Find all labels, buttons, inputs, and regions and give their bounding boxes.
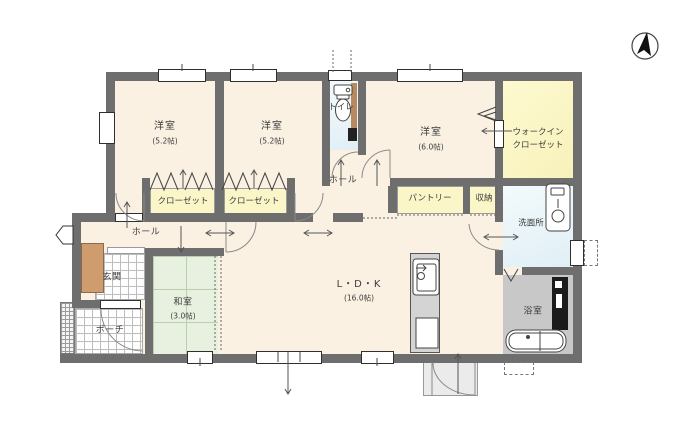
window bbox=[361, 351, 394, 364]
wall-segment bbox=[495, 178, 573, 186]
room-size-bedroom1: (5.2帖) bbox=[152, 136, 177, 145]
wall-segment bbox=[142, 178, 150, 222]
window-outline-dashed bbox=[504, 362, 534, 375]
window bbox=[328, 70, 352, 81]
window bbox=[158, 69, 206, 82]
window bbox=[397, 69, 463, 82]
window bbox=[256, 351, 322, 364]
room-size-japanese-room: (3.0帖) bbox=[170, 311, 195, 320]
room-label-washroom: 洗面所 bbox=[518, 219, 544, 230]
entrance-step bbox=[107, 247, 145, 254]
room-label-walkin-closet-1: ウォークイン bbox=[512, 128, 563, 139]
room-size-bedroom3: (6.0帖) bbox=[418, 142, 443, 151]
room-label-bathroom: 浴室 bbox=[523, 306, 542, 317]
wall-segment bbox=[75, 300, 100, 308]
wall-segment bbox=[463, 186, 470, 214]
exit-step-platform bbox=[423, 362, 478, 396]
window bbox=[230, 69, 277, 82]
door-sill bbox=[115, 213, 143, 222]
wall-segment bbox=[390, 178, 495, 186]
room-size-bedroom2: (5.2帖) bbox=[259, 136, 284, 145]
window bbox=[187, 351, 213, 364]
wall-segment bbox=[106, 72, 115, 222]
room-label-pantry: パントリー bbox=[409, 194, 452, 205]
entrance-door bbox=[100, 300, 141, 309]
walkin-closet-door bbox=[494, 120, 504, 148]
wall-segment bbox=[215, 72, 224, 222]
wall-segment bbox=[145, 248, 153, 354]
room-label-japanese-room: 和室 bbox=[173, 297, 192, 308]
hall-niche-window bbox=[56, 226, 73, 244]
window bbox=[570, 240, 584, 266]
wall-segment bbox=[72, 213, 115, 222]
wall-segment bbox=[495, 267, 503, 275]
kitchen-counter bbox=[410, 253, 440, 353]
north-arrow-icon bbox=[632, 32, 658, 59]
wall-segment bbox=[322, 72, 330, 186]
shoe-cabinet bbox=[81, 243, 104, 293]
room-label-bedroom3: 洋室 bbox=[420, 127, 442, 140]
wall-segment bbox=[573, 72, 582, 363]
room-label-entrance: 玄関 bbox=[102, 272, 121, 283]
room-label-walkin-closet-2: クローゼット bbox=[512, 141, 563, 152]
room-label-hall-upper: ホール bbox=[329, 175, 358, 186]
porch-side-hatch bbox=[60, 302, 75, 354]
room-label-closet-right: クローゼット bbox=[228, 197, 279, 208]
room-label-porch: ポーチ bbox=[96, 325, 125, 336]
room-label-bedroom2: 洋室 bbox=[261, 121, 283, 134]
window-outline-dashed bbox=[584, 240, 598, 266]
wall-segment bbox=[72, 213, 81, 308]
room-label-ldk: L・D・K bbox=[337, 279, 382, 292]
floor-plan: 洋室 (5.2帖) 洋室 (5.2帖) 洋室 (6.0帖) ウォークイン クロー… bbox=[0, 0, 700, 446]
bathroom-unit-panel bbox=[552, 277, 568, 330]
wall-segment bbox=[333, 213, 363, 222]
wall-segment bbox=[388, 186, 397, 213]
window bbox=[99, 112, 115, 144]
wall-segment bbox=[358, 72, 366, 155]
wall-segment bbox=[145, 248, 224, 256]
room-label-hall-lower: ホール bbox=[132, 227, 161, 238]
room-label-storage: 収納 bbox=[475, 194, 492, 205]
room-label-closet-left: クローゼット bbox=[157, 197, 208, 208]
room-label-bedroom1: 洋室 bbox=[154, 121, 176, 134]
room-label-toilet: トイレ bbox=[328, 103, 354, 114]
toilet-door-lock bbox=[348, 128, 357, 141]
wall-segment bbox=[522, 267, 582, 275]
wall-segment bbox=[287, 178, 295, 222]
room-size-ldk: (16.0帖) bbox=[344, 293, 374, 302]
